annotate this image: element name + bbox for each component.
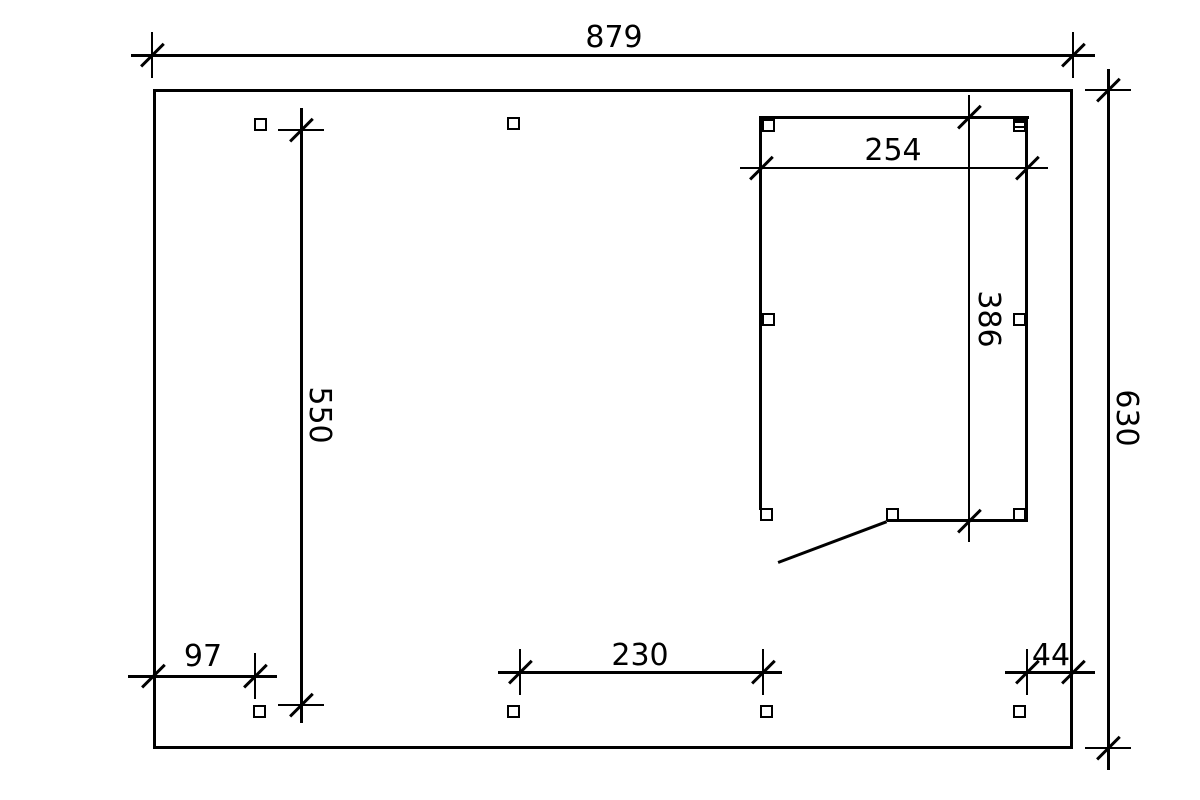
- post-marker: [1013, 508, 1026, 521]
- technical-drawing-canvas: 879 630 550 254 386 97 230 44: [0, 0, 1200, 800]
- post-marker: [1013, 313, 1026, 326]
- dim-line-386: [968, 95, 971, 542]
- post-marker-hatched: [1013, 119, 1026, 132]
- post-marker: [253, 705, 266, 718]
- post-marker: [254, 118, 267, 131]
- post-marker: [507, 117, 520, 130]
- dim-label-total-height: 630: [1111, 389, 1141, 446]
- post-marker: [762, 119, 775, 132]
- dim-label-left-bay-height: 550: [304, 386, 334, 443]
- post-marker: [760, 705, 773, 718]
- room-wall-bottom: [887, 519, 1028, 522]
- dim-label-bottom-right-offset: 44: [1011, 641, 1091, 671]
- dim-label-bottom-mid-span: 230: [590, 641, 690, 671]
- dim-label-room-height: 386: [973, 290, 1003, 347]
- post-marker: [886, 508, 899, 521]
- post-marker: [760, 508, 773, 521]
- post-marker: [507, 705, 520, 718]
- dim-label-room-width: 254: [843, 136, 943, 166]
- dim-label-total-width: 879: [564, 23, 664, 53]
- post-marker: [1013, 705, 1026, 718]
- room-wall-top: [759, 116, 1029, 119]
- post-marker: [762, 313, 775, 326]
- dim-label-bottom-left-offset: 97: [163, 642, 243, 672]
